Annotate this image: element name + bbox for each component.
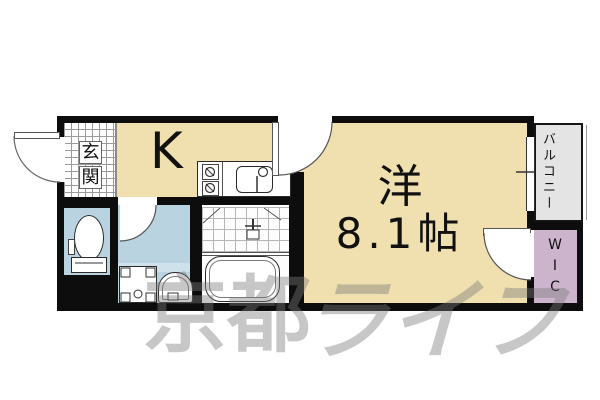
main-room-size-label: 8.1帖	[328, 213, 472, 255]
pan-corner	[146, 268, 155, 277]
floorplan: 玄 関 K 洋 8.1帖 バルコニー WIC 京都 ライフ	[0, 0, 600, 400]
kitchen-label: K	[150, 126, 183, 176]
basin-faucet-icon	[168, 293, 178, 300]
bath-faucet-icon	[247, 230, 259, 239]
entrance-label-char1: 玄	[82, 144, 100, 162]
pan-corner	[146, 293, 155, 302]
detail-overlay	[0, 0, 600, 400]
entrance-label-char2: 関	[82, 169, 100, 187]
door-swing-icon	[14, 136, 60, 182]
entrance-label-box: 関	[79, 166, 102, 189]
sink-faucet-icon	[259, 168, 268, 177]
drain-icon	[134, 290, 142, 298]
wic-label: WIC	[548, 237, 562, 299]
bathroom-corner-line	[203, 208, 220, 223]
pan-corner	[121, 293, 130, 302]
main-room-label: 洋	[330, 164, 470, 209]
balcony-label: バルコニー	[541, 132, 554, 224]
pan-corner	[121, 268, 130, 277]
bathroom-corner-line	[264, 208, 281, 220]
entrance-label-box: 玄	[79, 141, 102, 164]
